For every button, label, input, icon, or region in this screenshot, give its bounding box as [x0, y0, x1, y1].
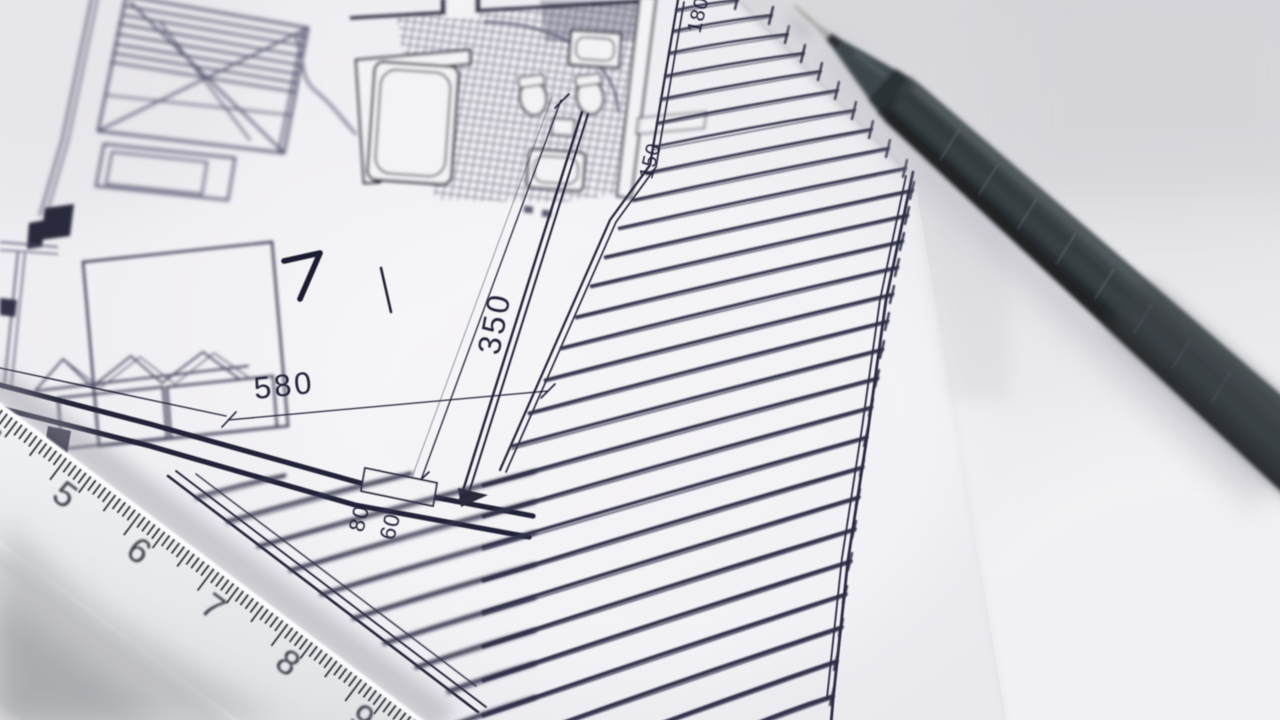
svg-text:580: 580	[252, 365, 316, 406]
